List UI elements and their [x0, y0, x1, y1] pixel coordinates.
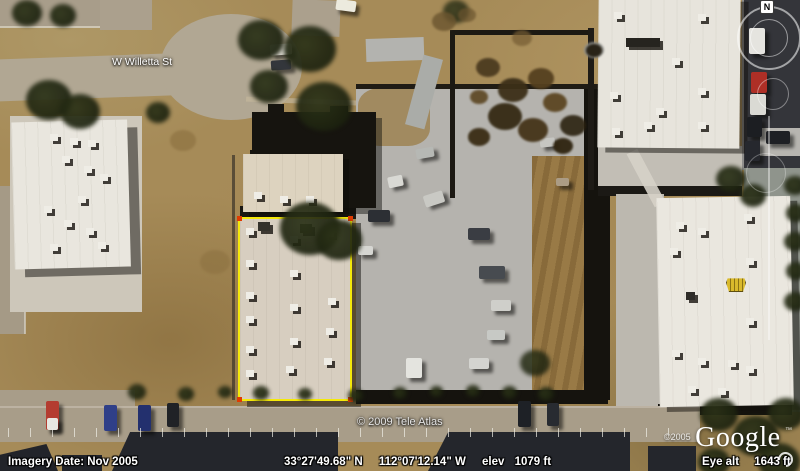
tree — [218, 386, 232, 398]
tree — [393, 387, 407, 399]
roof-vent — [698, 122, 706, 129]
roof-vent — [246, 346, 254, 353]
ground-debris — [488, 103, 522, 130]
tree — [316, 220, 362, 260]
parking-line — [140, 428, 141, 437]
roof-vent — [746, 366, 754, 373]
vehicle — [104, 405, 117, 431]
google-logo-tm: ™ — [785, 427, 792, 434]
roof-vent — [644, 122, 652, 129]
vehicle — [406, 358, 422, 378]
ground-debris — [470, 90, 488, 104]
elevation-label: elev — [482, 456, 504, 468]
vehicle — [547, 403, 559, 426]
tree — [284, 26, 336, 72]
parking-line — [74, 428, 75, 437]
ground-debris — [528, 68, 554, 89]
roof-vent — [98, 242, 106, 249]
vehicle — [469, 358, 489, 369]
ground-debris — [458, 8, 476, 22]
tree — [466, 385, 480, 397]
roof-vent — [88, 140, 96, 147]
google-logo: Google — [695, 422, 780, 453]
parking-line — [558, 428, 559, 437]
roof-vent — [328, 298, 336, 305]
roof-vent — [326, 328, 334, 335]
parking-line — [206, 428, 207, 437]
parking-line — [646, 428, 647, 437]
vehicle — [747, 117, 762, 137]
parking-line — [448, 428, 449, 437]
parking-line — [272, 428, 273, 437]
roof-vent — [246, 228, 254, 235]
elevation-value: 1079 ft — [515, 456, 551, 468]
vehicle — [335, 0, 356, 12]
roof-vent — [258, 222, 270, 231]
vehicle — [423, 190, 446, 208]
look-ring[interactable] — [757, 78, 789, 110]
tree — [784, 232, 800, 251]
roof-vent — [246, 370, 254, 377]
parking-line — [382, 428, 383, 437]
roof-vent — [612, 128, 620, 135]
ground-debris — [518, 118, 548, 142]
roof-vent — [670, 248, 678, 255]
google-watermark: ©2005 Google ™ — [664, 422, 792, 454]
vehicle — [368, 210, 390, 222]
parking-line — [536, 428, 537, 437]
tree — [178, 387, 194, 401]
roof-vent — [698, 14, 706, 21]
roof-vent — [290, 304, 298, 311]
vehicle — [415, 147, 434, 160]
longitude: 112°07'12.14" W — [379, 456, 466, 468]
tree — [12, 0, 42, 26]
imagery-date: Imagery Date: Nov 2005 — [8, 456, 138, 468]
tree — [128, 384, 146, 400]
tree — [520, 350, 550, 376]
parking-line — [316, 428, 317, 437]
roof-vent — [64, 220, 72, 227]
parking-line — [492, 428, 493, 437]
roof-vent — [78, 196, 86, 203]
tree — [250, 70, 288, 103]
roof-vent — [290, 338, 298, 345]
decor-layer — [0, 0, 800, 471]
vehicle — [556, 178, 569, 186]
eye-altitude-label: Eye alt — [702, 456, 739, 468]
vehicle — [487, 330, 505, 340]
roof-vent — [610, 92, 618, 99]
roof-vent — [246, 316, 254, 323]
parking-line — [338, 428, 339, 437]
roof-vent — [718, 388, 726, 395]
pointer-coordinates: 33°27'49.68" N 112°07'12.14" W elev 1079… — [284, 456, 551, 468]
tree — [50, 4, 76, 27]
parking-line — [580, 428, 581, 437]
ground-debris — [543, 93, 567, 112]
parking-line — [184, 428, 185, 437]
parking-line — [162, 428, 163, 437]
tree — [538, 387, 554, 401]
ground-debris — [170, 130, 196, 151]
parking-line — [52, 428, 53, 437]
parking-line — [360, 428, 361, 437]
tree — [430, 386, 443, 397]
tile-copyright: © 2009 Tele Atlas — [357, 416, 443, 428]
ground-debris — [512, 30, 532, 46]
ground-debris — [553, 138, 573, 154]
parking-line — [514, 428, 515, 437]
roof-vent — [50, 134, 58, 141]
roof-vent — [676, 222, 684, 229]
ground-debris — [560, 115, 586, 136]
parking-line — [96, 428, 97, 437]
roof-vent — [698, 228, 706, 235]
roof-vent — [246, 292, 254, 299]
tree — [146, 102, 170, 123]
zoom-slider-knob[interactable] — [746, 153, 786, 193]
vehicle — [491, 300, 511, 311]
tree — [348, 389, 363, 402]
roof-vent — [84, 166, 92, 173]
roof-vent — [86, 228, 94, 235]
roof-vent — [254, 192, 262, 199]
roof-vent — [280, 196, 288, 203]
parking-line — [624, 428, 625, 437]
roof-vent — [746, 258, 754, 265]
tree — [784, 292, 800, 311]
vehicle — [387, 175, 404, 189]
street-label: W Willetta St — [112, 56, 172, 68]
parking-line — [8, 428, 9, 437]
roof-vent — [686, 292, 695, 300]
watermark-year: ©2005 — [664, 432, 691, 442]
tree — [784, 176, 800, 195]
roof-vent — [626, 38, 660, 47]
vehicle — [479, 266, 505, 279]
vehicle — [468, 228, 490, 240]
ground-debris — [476, 58, 500, 77]
tree — [296, 82, 352, 131]
vehicle — [167, 403, 179, 427]
parking-line — [404, 428, 405, 437]
ground-debris — [498, 78, 528, 102]
ground-debris — [432, 12, 456, 31]
tree — [502, 386, 517, 399]
roof-vent — [286, 366, 294, 373]
parking-line — [30, 428, 31, 437]
zoom-slider[interactable] — [768, 116, 770, 340]
roof-vent — [290, 270, 298, 277]
roof-vent — [62, 156, 70, 163]
roof-vent — [672, 58, 680, 65]
parking-line — [294, 428, 295, 437]
roof-vent — [70, 138, 78, 145]
parking-line — [250, 428, 251, 437]
north-button[interactable]: N — [760, 0, 774, 14]
ground-debris — [586, 44, 602, 57]
tree — [253, 386, 269, 400]
compass-inner-ring[interactable] — [750, 19, 788, 57]
roof-vent — [44, 206, 52, 213]
parking-line — [228, 428, 229, 437]
vehicle — [518, 401, 531, 427]
roof-vent — [672, 350, 680, 357]
roof-vent — [100, 174, 108, 181]
tree — [786, 262, 800, 280]
roof-vent — [746, 318, 754, 325]
tree — [786, 204, 800, 222]
roof-vent — [50, 244, 58, 251]
tree — [298, 388, 312, 400]
roof-vent — [614, 12, 622, 19]
roof-vent — [246, 260, 254, 267]
parking-line — [426, 428, 427, 437]
ground-debris — [200, 250, 230, 274]
latitude: 33°27'49.68" N — [284, 456, 363, 468]
roof-vent — [744, 214, 752, 221]
tree — [60, 94, 100, 129]
parking-line — [118, 428, 119, 437]
parking-line — [470, 428, 471, 437]
ground-debris — [468, 128, 490, 146]
roof-vent — [698, 358, 706, 365]
roof-vent — [688, 386, 696, 393]
roof-vent — [728, 360, 736, 367]
earth-view[interactable]: W Willetta St © 2009 Tele Atlas ©2005 Go… — [0, 0, 800, 471]
roof-vent — [324, 358, 332, 365]
roof-vent — [656, 108, 664, 115]
parking-line — [602, 428, 603, 437]
roof-vent — [698, 88, 706, 95]
